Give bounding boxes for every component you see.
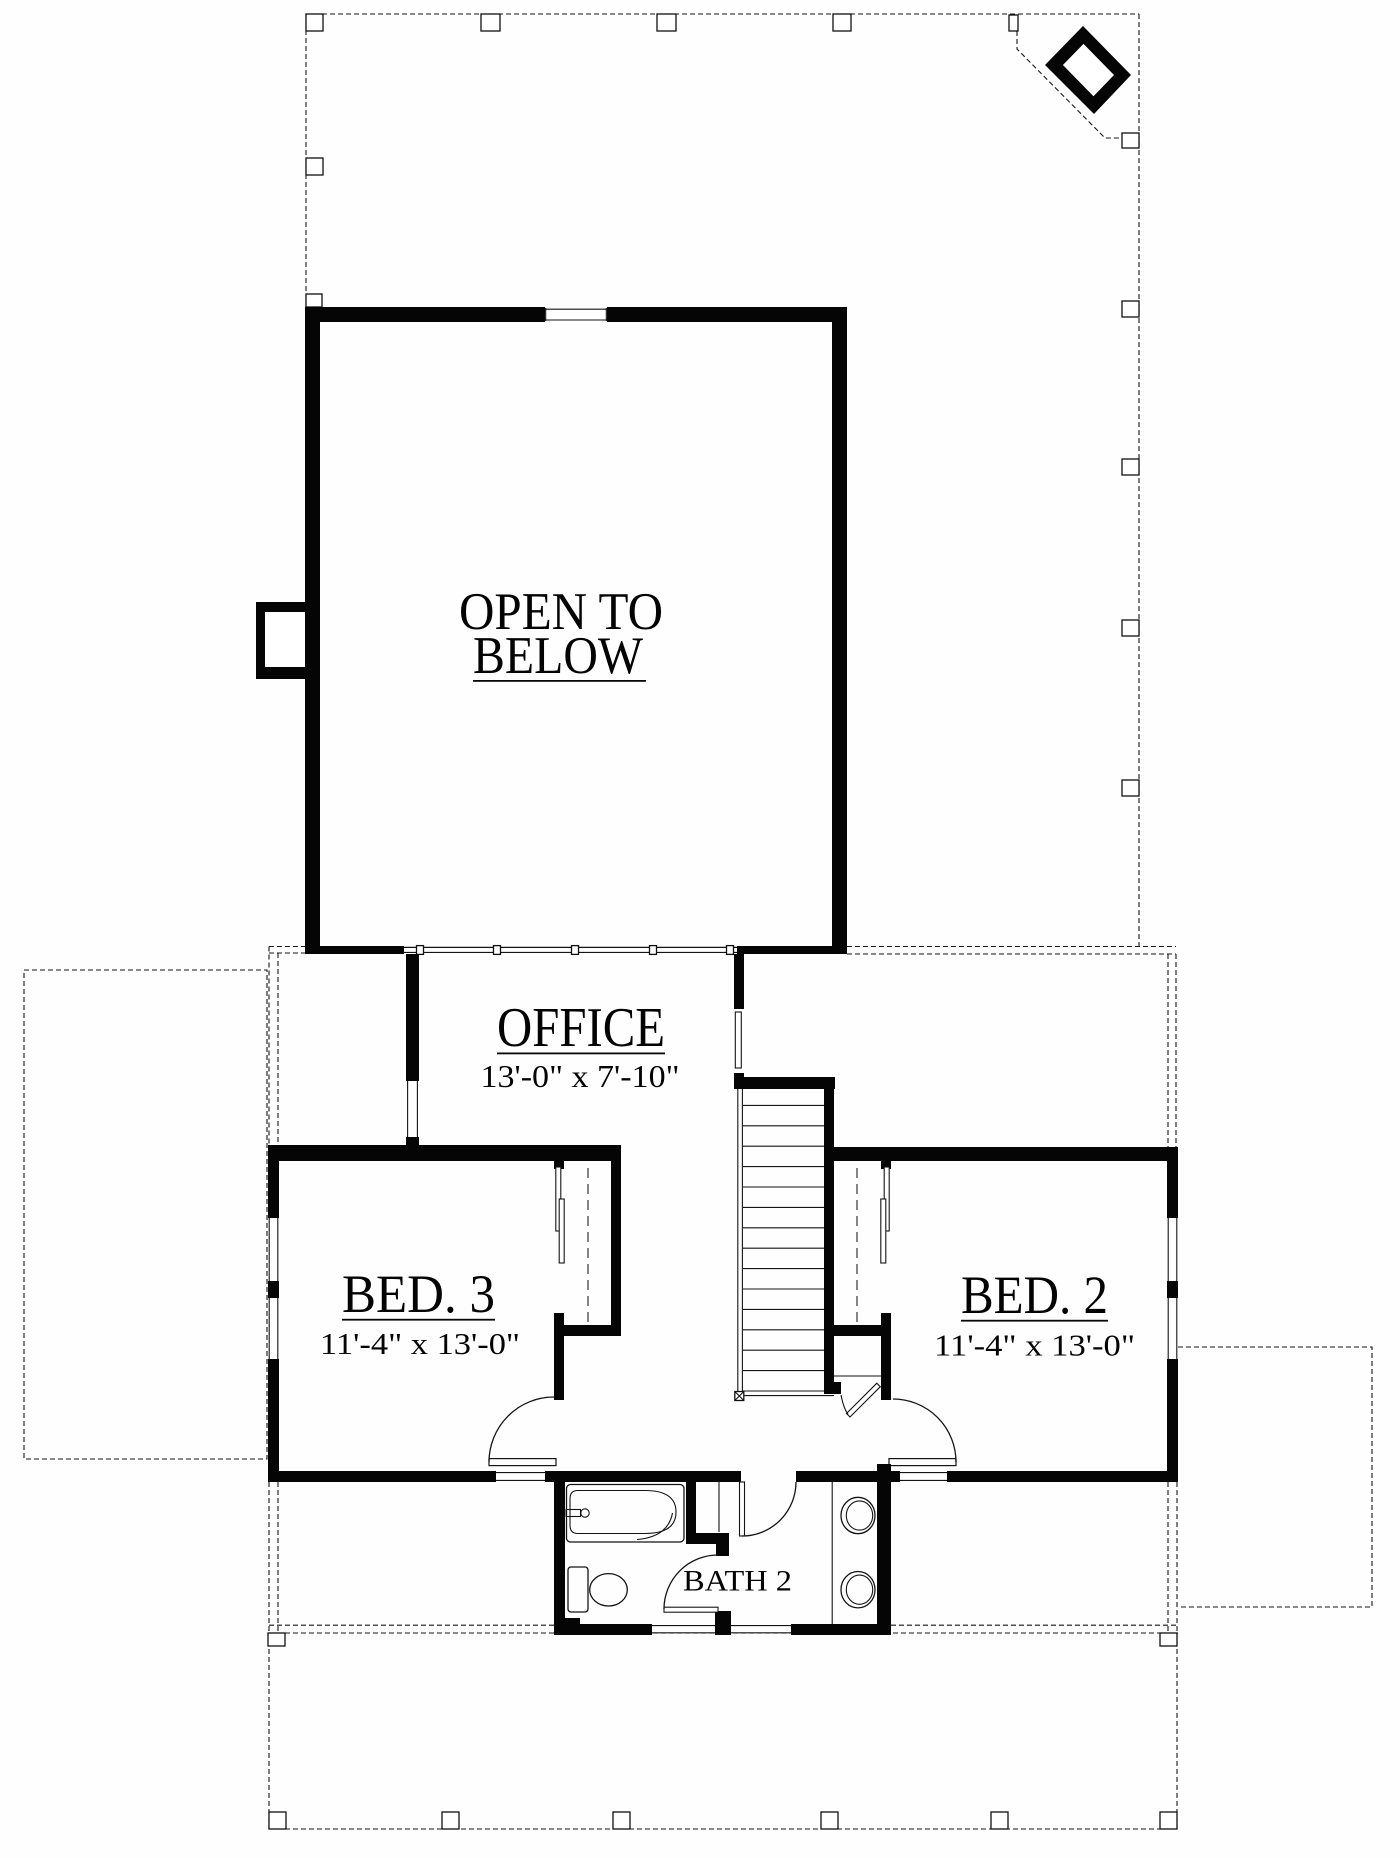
- svg-text:BED. 2: BED. 2: [961, 1265, 1108, 1325]
- svg-text:BATH 2: BATH 2: [683, 1565, 792, 1598]
- svg-text:BED. 3: BED. 3: [342, 1264, 495, 1324]
- svg-text:OFFICE: OFFICE: [497, 997, 665, 1059]
- svg-text:13'-0" x 7'-10": 13'-0" x 7'-10": [481, 1058, 680, 1094]
- svg-text:BELOW: BELOW: [473, 627, 643, 685]
- svg-text:11'-4" x 13'-0": 11'-4" x 13'-0": [320, 1326, 520, 1361]
- svg-text:11'-4" x 13'-0": 11'-4" x 13'-0": [934, 1328, 1135, 1363]
